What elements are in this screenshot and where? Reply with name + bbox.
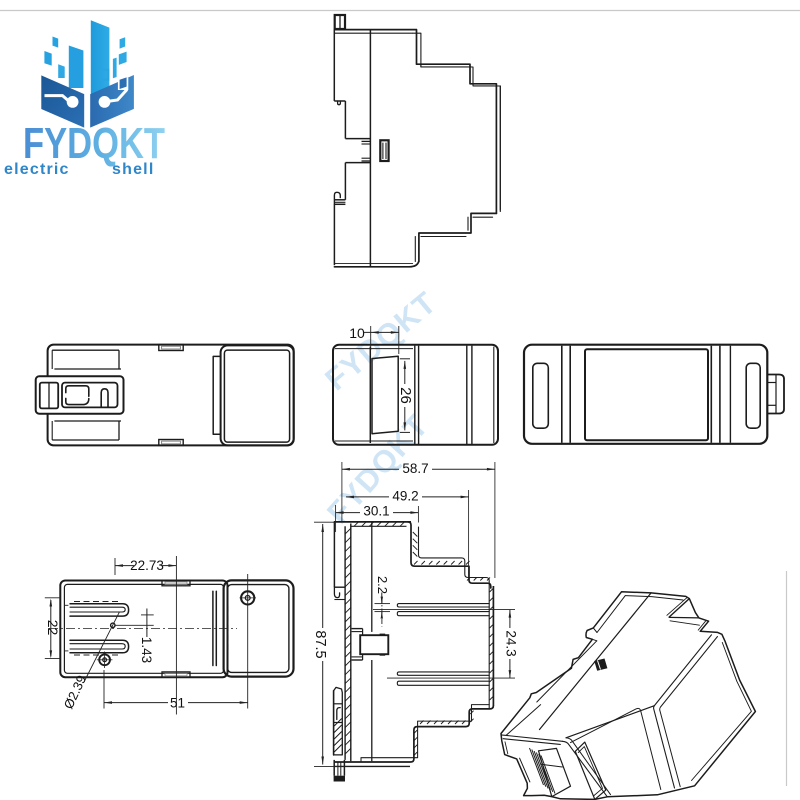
svg-text:22: 22 [45, 620, 61, 636]
svg-text:shell: shell [112, 161, 154, 178]
svg-text:2.2: 2.2 [375, 576, 390, 594]
svg-text:51: 51 [170, 696, 185, 711]
svg-text:10: 10 [349, 325, 365, 341]
svg-text:24.3: 24.3 [503, 630, 518, 656]
svg-text:30.1: 30.1 [363, 504, 389, 519]
svg-text:87.5: 87.5 [312, 630, 328, 658]
svg-text:58.7: 58.7 [402, 461, 428, 476]
svg-text:26: 26 [397, 387, 414, 404]
svg-text:22.73: 22.73 [130, 558, 164, 573]
svg-text:49.2: 49.2 [392, 489, 418, 504]
svg-text:electric: electric [4, 161, 70, 178]
svg-text:1.43: 1.43 [139, 637, 154, 663]
